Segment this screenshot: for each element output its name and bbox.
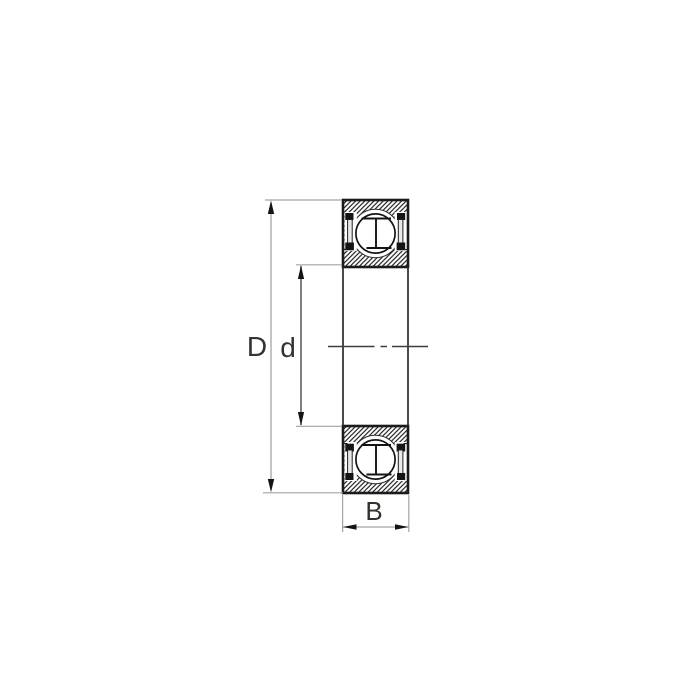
seal-lip: [348, 220, 353, 244]
seal-cap: [397, 243, 406, 251]
top-section: [343, 200, 408, 267]
bore-diameter-label: d: [280, 332, 296, 363]
bearing-drawing-page: D d B: [0, 0, 700, 700]
seal-cap: [345, 213, 353, 220]
outer-diameter-label: D: [247, 331, 267, 362]
dimension-width: B: [343, 495, 409, 532]
width-label: B: [365, 496, 382, 526]
seal-lip: [348, 450, 353, 474]
seal-cap: [345, 243, 354, 251]
seal-lip: [398, 450, 403, 474]
seal-cap: [345, 473, 353, 480]
arrow-up-icon: [268, 201, 274, 215]
arrow-left-icon: [343, 524, 357, 530]
seal-cap: [397, 213, 405, 220]
arrow-right-icon: [395, 524, 409, 530]
seal-lip: [398, 220, 403, 244]
arrow-down-icon: [298, 412, 304, 426]
arrow-down-icon: [268, 479, 274, 492]
dimension-bore-diameter: d: [280, 265, 342, 427]
arrow-up-icon: [298, 265, 304, 279]
seal-cap: [397, 473, 405, 480]
bearing-body: [328, 200, 428, 493]
bottom-section: [343, 426, 408, 493]
bearing-cross-section-drawing: D d B: [0, 0, 700, 700]
